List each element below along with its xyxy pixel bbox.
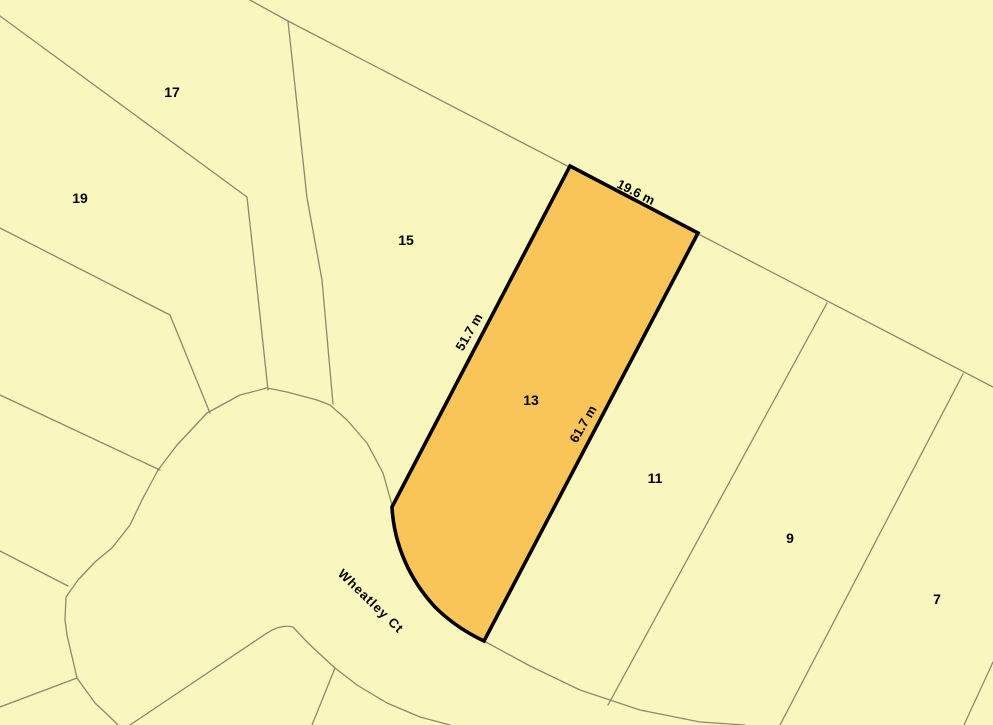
parcel-label-15: 15 <box>398 232 414 248</box>
street-lower-edge <box>130 626 450 725</box>
parcel-label-11: 11 <box>648 470 663 486</box>
boundary-line-west-3 <box>0 678 77 707</box>
boundary-line-11-9 <box>608 303 827 705</box>
boundary-line-17-15 <box>288 21 333 404</box>
boundary-line-9-7 <box>780 374 963 725</box>
boundary-line-south-parcels <box>312 668 335 725</box>
street-upper-edge <box>484 641 745 725</box>
boundary-line-17-19 <box>0 16 268 390</box>
cadastral-map[interactable]: 17 19 15 13 11 9 7 19.6 m 51.7 m 61.7 m … <box>0 0 993 725</box>
parcel-label-13: 13 <box>523 392 539 408</box>
boundary-line-top <box>250 0 288 21</box>
parcel-label-17: 17 <box>164 84 180 100</box>
boundary-line-west-2 <box>0 551 68 586</box>
boundary-line-7-east <box>964 662 993 725</box>
boundary-line-west-1 <box>0 395 160 470</box>
map-canvas[interactable] <box>0 0 993 725</box>
parcel-13-shape[interactable] <box>392 166 698 641</box>
parcel-label-19: 19 <box>72 190 88 206</box>
parcel-label-9: 9 <box>786 530 794 546</box>
boundary-line-19-lower <box>0 228 210 413</box>
parcel-label-7: 7 <box>933 591 941 607</box>
